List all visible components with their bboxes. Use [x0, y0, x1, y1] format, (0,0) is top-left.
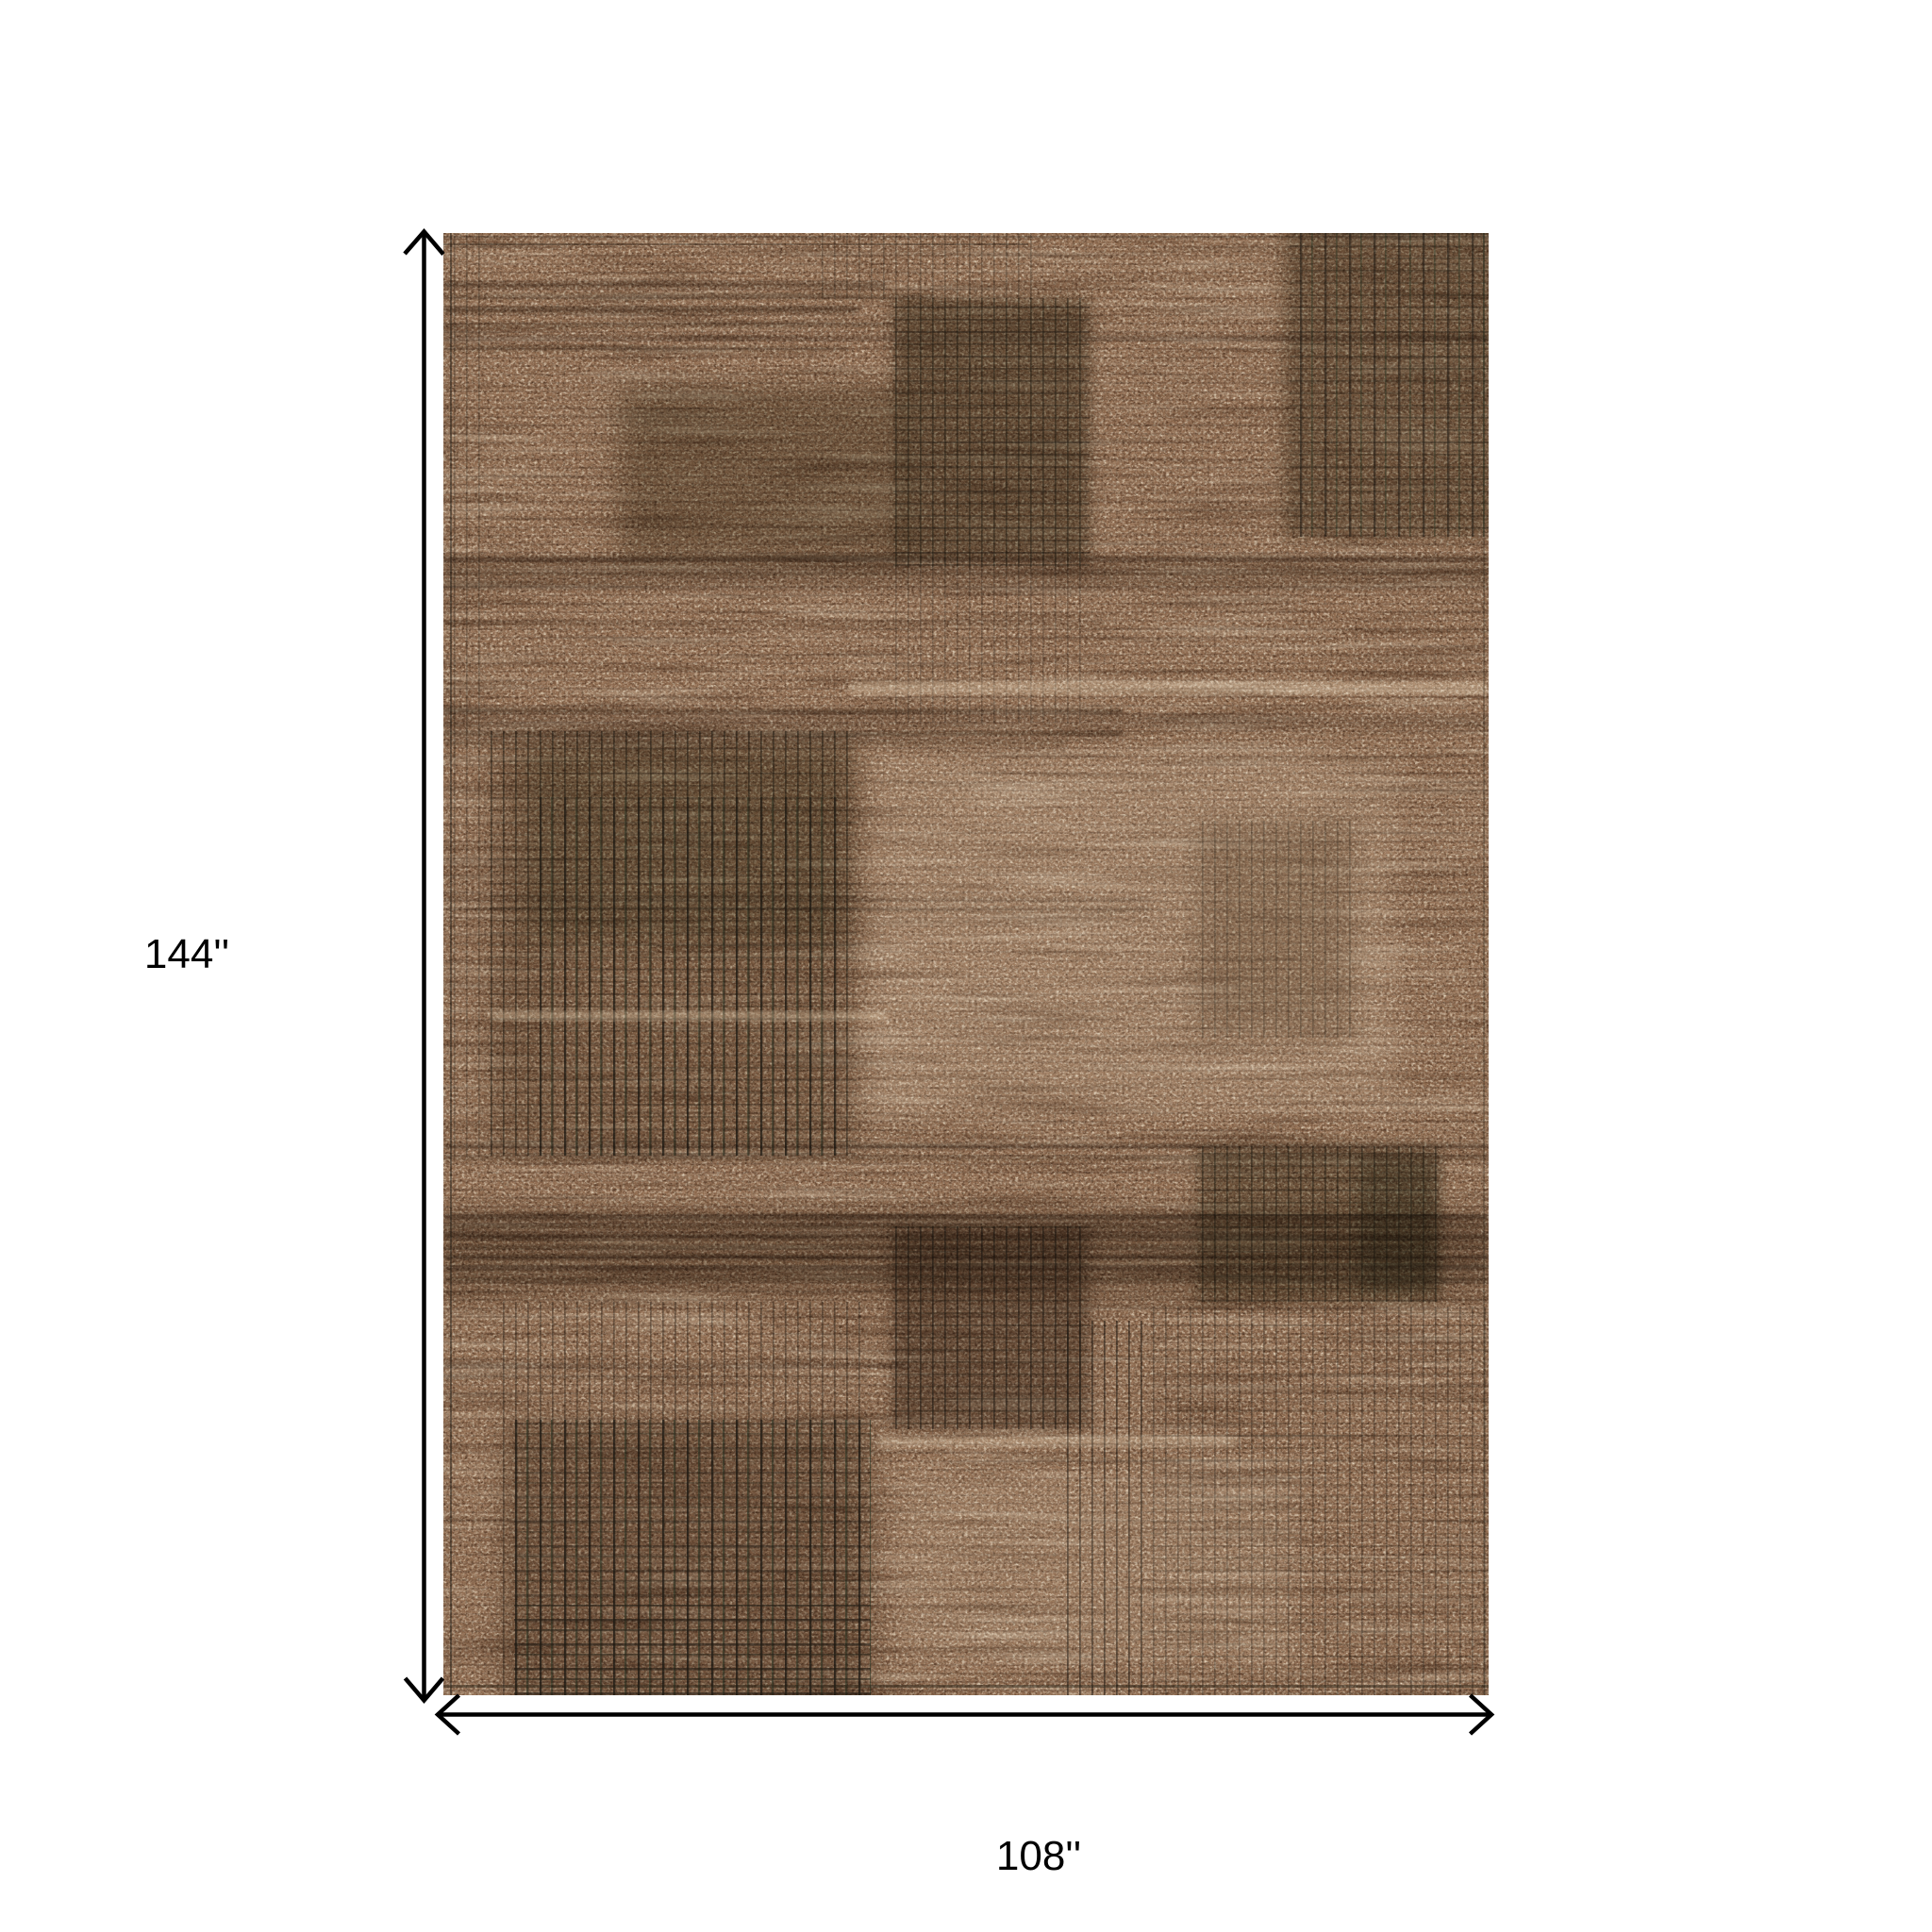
svg-text:108'': 108'' [996, 1833, 1081, 1879]
svg-text:144'': 144'' [144, 931, 229, 977]
